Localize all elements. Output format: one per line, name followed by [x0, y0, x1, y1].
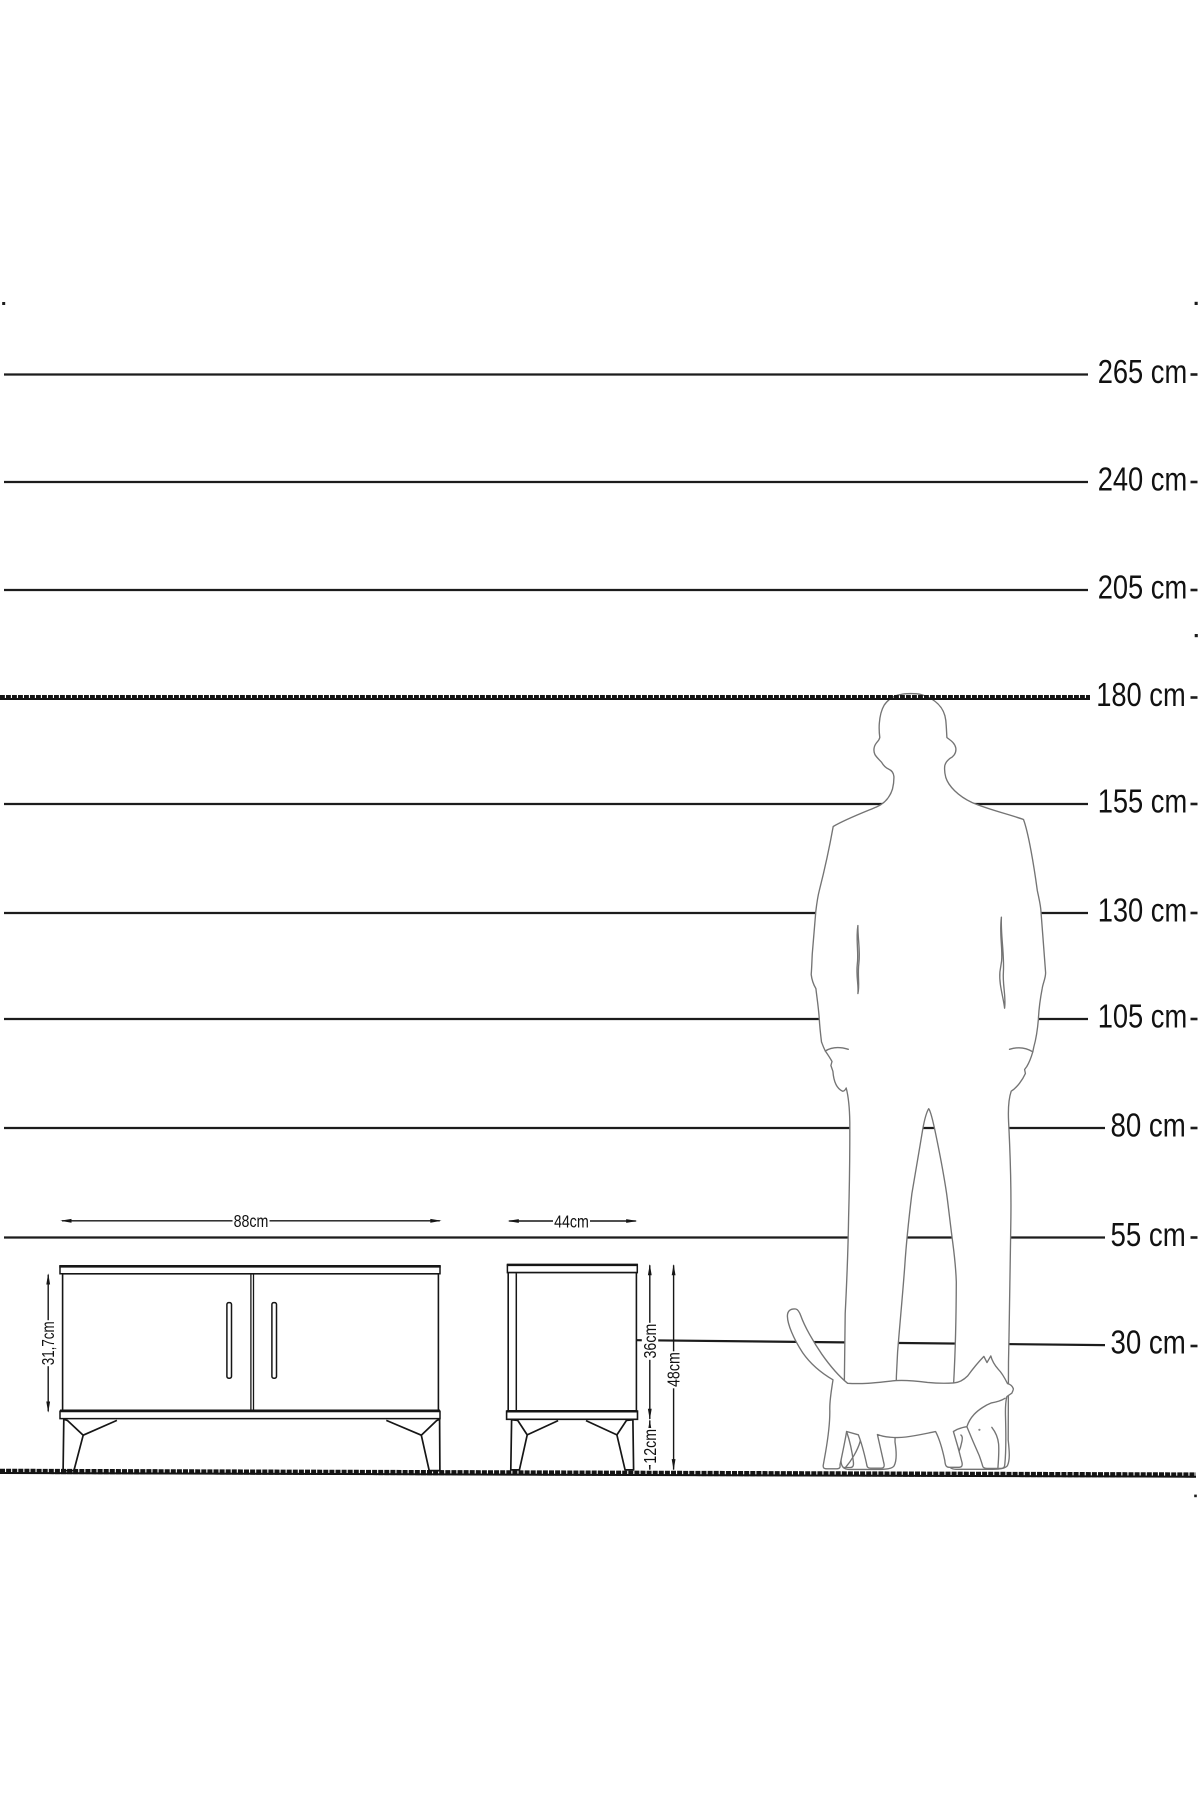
svg-text:12cm: 12cm — [640, 1429, 660, 1464]
svg-text:30 cm: 30 cm — [1111, 1323, 1186, 1360]
svg-text:180 cm: 180 cm — [1096, 676, 1186, 713]
svg-text:88cm: 88cm — [234, 1211, 269, 1231]
svg-text:31,7cm: 31,7cm — [38, 1321, 58, 1365]
svg-text:205 cm: 205 cm — [1098, 568, 1188, 605]
svg-text:48cm: 48cm — [664, 1352, 684, 1387]
svg-text:155 cm: 155 cm — [1098, 782, 1188, 819]
svg-text:55 cm: 55 cm — [1111, 1216, 1186, 1253]
svg-text:130 cm: 130 cm — [1098, 891, 1188, 928]
svg-text:240 cm: 240 cm — [1098, 460, 1188, 497]
svg-text:44cm: 44cm — [554, 1211, 589, 1231]
svg-text:80 cm: 80 cm — [1111, 1106, 1186, 1143]
svg-text:265 cm: 265 cm — [1098, 353, 1188, 390]
svg-text:36cm: 36cm — [640, 1324, 660, 1359]
svg-text:105 cm: 105 cm — [1098, 997, 1188, 1034]
